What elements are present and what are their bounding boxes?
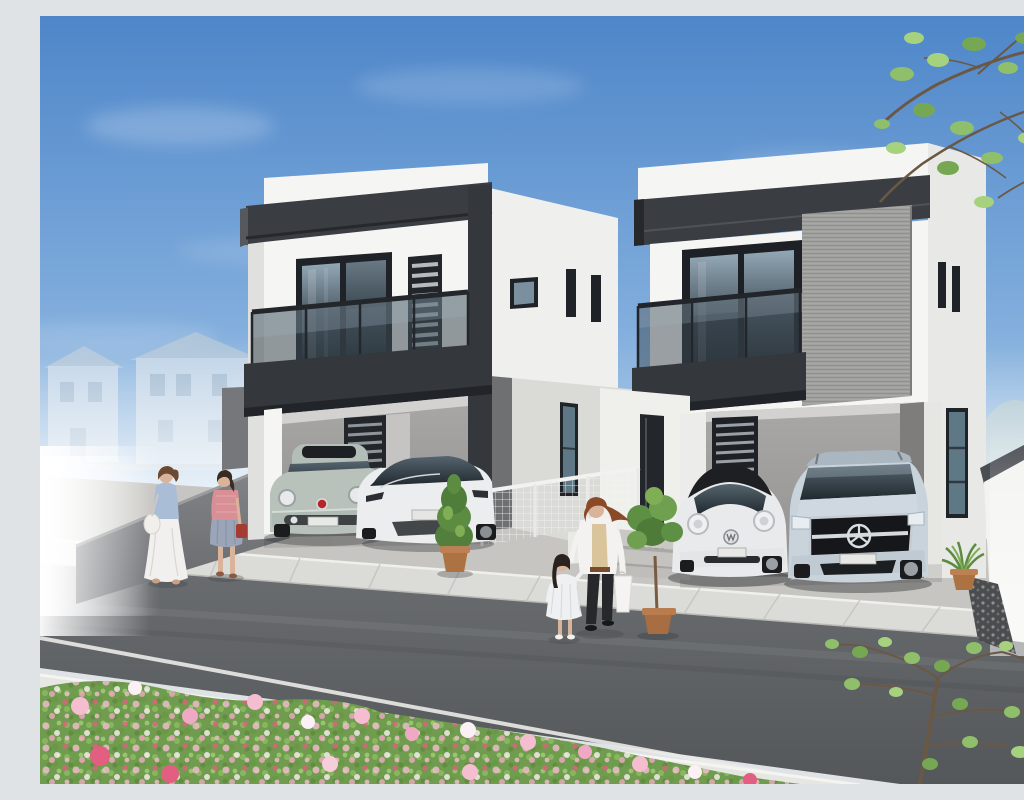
mercedes-eqc [784, 450, 932, 593]
red-bag [236, 524, 247, 538]
feature-panel [802, 205, 912, 406]
pink-top [211, 490, 239, 520]
beetle-vw-badge [724, 530, 738, 544]
mercedes-headlight-right [908, 512, 924, 525]
side-slit-window-1 [938, 262, 946, 308]
belt [590, 567, 610, 572]
mercedes-headlight-left [792, 516, 810, 529]
tesla-model-3 [356, 456, 496, 552]
wing-slit-window-1 [566, 269, 576, 317]
fiat-headlight-left [279, 490, 295, 506]
fiat-plate [308, 517, 338, 526]
fiat-badge [317, 499, 327, 509]
tree-pot [644, 612, 672, 634]
mercedes-plate [840, 554, 876, 564]
wing-slit-window-2 [591, 275, 601, 322]
shopping-bag [614, 576, 632, 612]
black-pants-leg [602, 572, 614, 620]
architectural-rendering: Modern duplex houses – exterior architec… [40, 16, 1024, 784]
shoulder-bag [144, 514, 160, 534]
beige-top [592, 524, 608, 572]
beetle-plate [718, 548, 746, 557]
tesla-headlight-right [472, 490, 488, 498]
right-house-tall-window [946, 408, 968, 518]
plant-pot [442, 550, 468, 572]
side-slit-window-2 [952, 266, 960, 312]
